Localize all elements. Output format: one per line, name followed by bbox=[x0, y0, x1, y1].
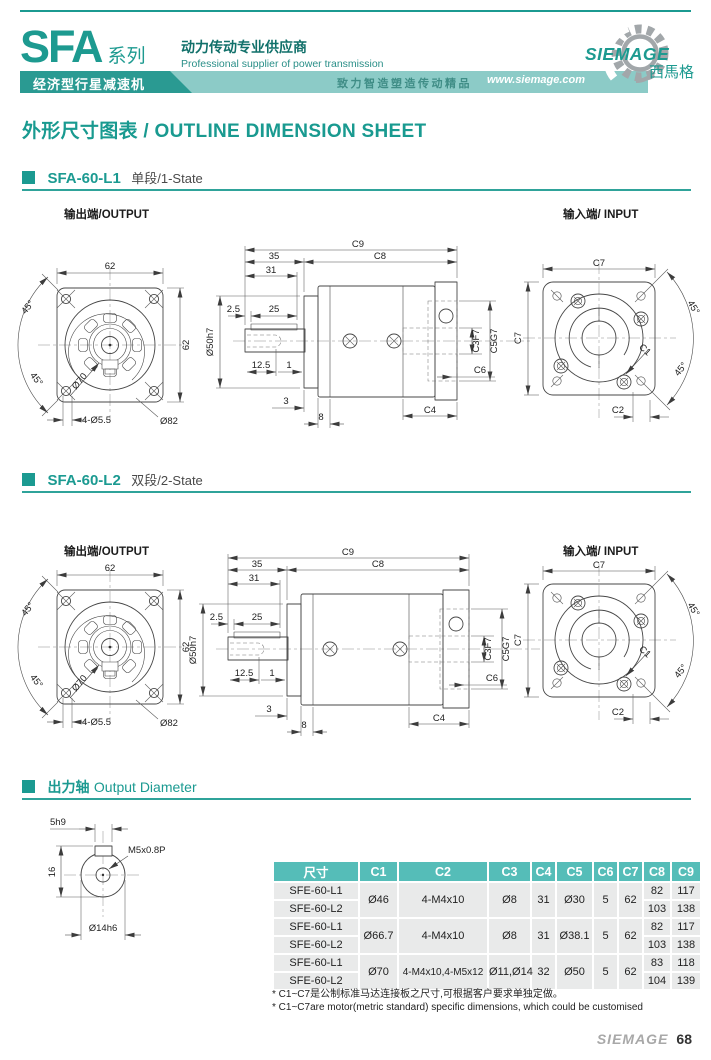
dim-label-tap-m5: M5x0.8P bbox=[128, 845, 166, 856]
dim-label-25: 25 bbox=[252, 612, 263, 623]
dim-label-c4: C4 bbox=[433, 713, 445, 724]
cell-c7: 62 bbox=[618, 954, 643, 990]
cell-c8: 83 bbox=[643, 954, 671, 972]
dim-label-1: 1 bbox=[269, 668, 274, 679]
dim-label-3: 3 bbox=[266, 704, 271, 715]
cell-c7: 62 bbox=[618, 918, 643, 954]
dim-label-key-5h9: 5h9 bbox=[50, 817, 66, 828]
dim-label-c7-top: C7 bbox=[593, 258, 605, 269]
dim-label-c2: C2 bbox=[612, 405, 624, 416]
cell-c5: Ø38.1 bbox=[556, 918, 593, 954]
cell-c4: 32 bbox=[531, 954, 556, 990]
dim-label-c7-left: C7 bbox=[513, 332, 524, 344]
output-shaft-drawing: 5h9 16 M5x0.8P Ø14h6 bbox=[47, 817, 166, 940]
dim-label-c8: C8 bbox=[374, 251, 386, 262]
cell-c1: Ø66.7 bbox=[359, 918, 398, 954]
cell-c8: 103 bbox=[643, 900, 671, 918]
dim-label-c5: C5G7 bbox=[501, 637, 512, 662]
cell-c6: 5 bbox=[593, 918, 618, 954]
dim-label-16: 16 bbox=[47, 867, 58, 878]
cell-c9: 117 bbox=[671, 918, 701, 936]
dim-label-height62: 62 bbox=[181, 340, 192, 351]
output-flange-drawing: 62 62 45° 45° Ø70 4-Ø5.5 Ø82 bbox=[18, 261, 192, 427]
table-row: SFE-60-L1 Ø66.7 4-M4x10 Ø8 31 Ø38.1 5 62… bbox=[273, 918, 701, 936]
dim-label-45-1: 45° bbox=[685, 299, 702, 317]
dim-label-d70: Ø70 bbox=[70, 371, 90, 392]
cell-c2: 4-M4x10 bbox=[398, 882, 488, 918]
cell-c9: 117 bbox=[671, 882, 701, 900]
cell-c9: 138 bbox=[671, 936, 701, 954]
dim-label-d82: Ø82 bbox=[160, 416, 178, 427]
col-header: C2 bbox=[398, 861, 488, 882]
dim-label-12-5: 12.5 bbox=[252, 360, 271, 371]
cell-c5: Ø50 bbox=[556, 954, 593, 990]
cell-c3: Ø8 bbox=[488, 882, 531, 918]
dim-label-width62: 62 bbox=[105, 261, 116, 272]
dim-label-bolt-holes: 4-Ø5.5 bbox=[82, 415, 111, 426]
dim-label-d14h6: Ø14h6 bbox=[89, 923, 118, 934]
col-header: C9 bbox=[671, 861, 701, 882]
input-flange-drawing: C7 C7 45° 45° C1 C2 bbox=[513, 258, 702, 422]
model-cell: SFE-60-L2 bbox=[273, 900, 359, 918]
dim-label-35: 35 bbox=[252, 559, 263, 570]
dim-label-c3: C3F7 bbox=[471, 329, 482, 352]
col-header: C4 bbox=[531, 861, 556, 882]
model-cell: SFE-60-L1 bbox=[273, 954, 359, 972]
cell-c1: Ø70 bbox=[359, 954, 398, 990]
side-view-drawing-l2: C9 35 C8 31 2.5 25 Ø50h7 12.5 1 3 8 C3F7… bbox=[188, 547, 540, 736]
col-header: C7 bbox=[618, 861, 643, 882]
dim-label-c8: C8 bbox=[372, 559, 384, 570]
dim-label-d50h7: Ø50h7 bbox=[188, 636, 199, 665]
cell-c1: Ø46 bbox=[359, 882, 398, 918]
cell-c8: 104 bbox=[643, 972, 671, 990]
dim-label-45-1: 45° bbox=[19, 298, 37, 316]
dim-label-31: 31 bbox=[266, 265, 277, 276]
model-cell: SFE-60-L1 bbox=[273, 918, 359, 936]
dim-label-c6: C6 bbox=[486, 673, 498, 684]
cell-c4: 31 bbox=[531, 918, 556, 954]
dim-label-c6: C6 bbox=[474, 365, 486, 376]
dimension-table: 尺寸 C1 C2 C3 C4 C5 C6 C7 C8 C9 SFE-60-L1 … bbox=[272, 860, 702, 991]
cell-c9: 138 bbox=[671, 900, 701, 918]
footnotes: * C1~C7是公制标准马达连接板之尺寸,可根据客户要求单独定做。 * C1~C… bbox=[272, 988, 643, 1014]
dim-label-2-5: 2.5 bbox=[210, 612, 223, 623]
dim-label-1: 1 bbox=[286, 360, 291, 371]
col-header: C8 bbox=[643, 861, 671, 882]
dim-label-c9: C9 bbox=[352, 239, 364, 250]
input-flange-drawing-l2 bbox=[513, 560, 702, 724]
dim-label-45-2: 45° bbox=[27, 370, 45, 388]
model-cell: SFE-60-L1 bbox=[273, 882, 359, 900]
cell-c8: 103 bbox=[643, 936, 671, 954]
cell-c2: 4-M4x10,4-M5x12 bbox=[398, 954, 488, 990]
col-header: C3 bbox=[488, 861, 531, 882]
col-header: 尺寸 bbox=[273, 861, 359, 882]
cell-c9: 139 bbox=[671, 972, 701, 990]
footnote-cn: * C1~C7是公制标准马达连接板之尺寸,可根据客户要求单独定做。 bbox=[272, 988, 643, 1001]
dim-label-c5: C5G7 bbox=[489, 329, 500, 354]
footer-brand: SIEMAGE bbox=[597, 1031, 669, 1047]
table-row: SFE-60-L1 Ø46 4-M4x10 Ø8 31 Ø30 5 62 82 … bbox=[273, 882, 701, 900]
dim-label-c9: C9 bbox=[342, 547, 354, 558]
cell-c3: Ø11,Ø14 bbox=[488, 954, 531, 990]
model-cell: SFE-60-L2 bbox=[273, 936, 359, 954]
dim-label-d50h7: Ø50h7 bbox=[205, 328, 216, 357]
table-row: SFE-60-L1 Ø70 4-M4x10,4-M5x12 Ø11,Ø14 32… bbox=[273, 954, 701, 972]
cell-c6: 5 bbox=[593, 954, 618, 990]
output-flange-drawing-l2 bbox=[18, 563, 192, 729]
dim-label-2-5: 2.5 bbox=[227, 304, 240, 315]
dim-label-3: 3 bbox=[283, 396, 288, 407]
footnote-en: * C1~C7are motor(metric standard) specif… bbox=[272, 1001, 643, 1014]
cell-c7: 62 bbox=[618, 882, 643, 918]
dim-label-35: 35 bbox=[269, 251, 280, 262]
cell-c5: Ø30 bbox=[556, 882, 593, 918]
cell-c4: 31 bbox=[531, 882, 556, 918]
dim-label-8: 8 bbox=[318, 412, 323, 423]
cell-c3: Ø8 bbox=[488, 918, 531, 954]
cell-c8: 82 bbox=[643, 882, 671, 900]
dim-label-25: 25 bbox=[269, 304, 280, 315]
table-header-row: 尺寸 C1 C2 C3 C4 C5 C6 C7 C8 C9 bbox=[273, 861, 701, 882]
cell-c9: 118 bbox=[671, 954, 701, 972]
cell-c2: 4-M4x10 bbox=[398, 918, 488, 954]
dim-label-12-5: 12.5 bbox=[235, 668, 254, 679]
dim-label-31: 31 bbox=[249, 573, 260, 584]
side-view-drawing-l1: C9 35 C8 31 2.5 25 Ø50h7 12.5 1 3 8 C3F7… bbox=[205, 239, 530, 428]
dim-label-45-2: 45° bbox=[672, 360, 690, 378]
cell-c8: 82 bbox=[643, 918, 671, 936]
dim-label-c3: C3F7 bbox=[483, 637, 494, 660]
dim-label-c4: C4 bbox=[424, 405, 436, 416]
page-footer: SIEMAGE68 bbox=[597, 1031, 692, 1049]
housing-screws bbox=[343, 334, 401, 348]
cell-c6: 5 bbox=[593, 882, 618, 918]
col-header: C5 bbox=[556, 861, 593, 882]
page-number: 68 bbox=[676, 1031, 692, 1047]
col-header: C1 bbox=[359, 861, 398, 882]
col-header: C6 bbox=[593, 861, 618, 882]
dim-label-8: 8 bbox=[301, 720, 306, 731]
